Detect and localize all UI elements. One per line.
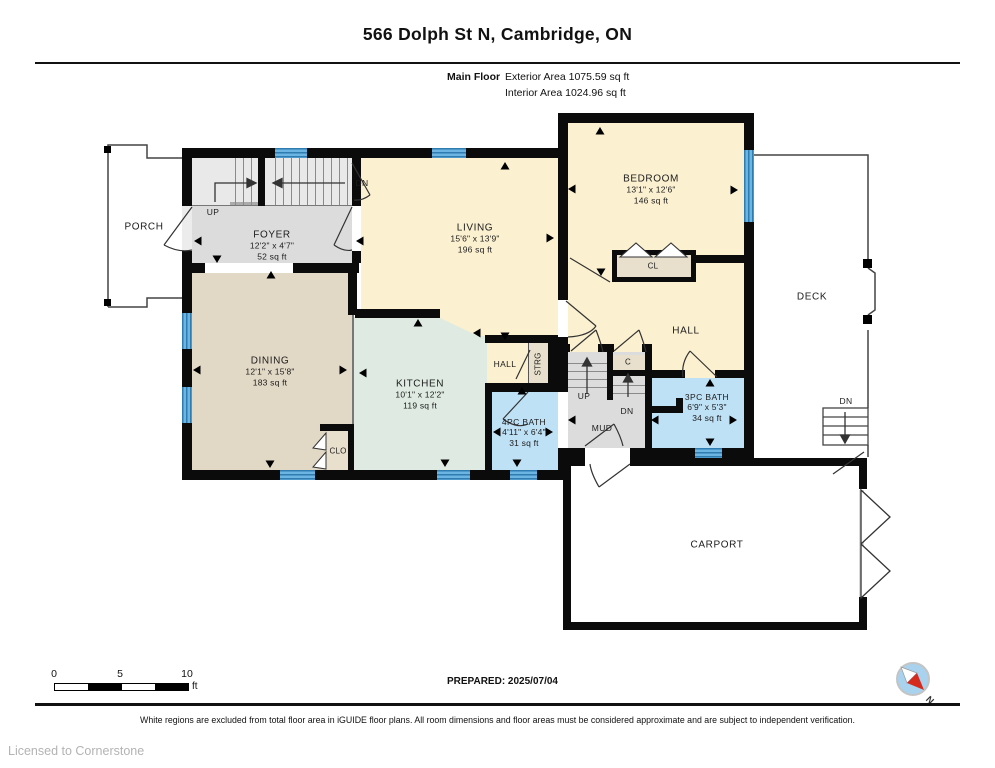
room-label-porch: PORCH [124, 222, 163, 233]
wall [607, 352, 613, 400]
center-dn-label: DN [620, 406, 633, 416]
dining-kitchen-divider [352, 315, 354, 425]
wall [192, 263, 205, 273]
room-label-bath3: 3PC BATH6'9" x 5'3"34 sq ft [685, 392, 729, 424]
window [437, 470, 470, 480]
room-label-deck: DECK [797, 292, 827, 303]
main-stairs-right-treads [268, 158, 352, 206]
up-stairs-treads [568, 356, 607, 392]
compass-icon: N [893, 659, 937, 703]
room-label-foyer: FOYER12'2" x 4'7"52 sq ft [250, 230, 294, 263]
deck-stairs [823, 408, 868, 445]
wall [258, 158, 265, 206]
wall [182, 251, 192, 480]
wall [630, 458, 867, 466]
room-label-bedroom: BEDROOM13'1" x 12'6"146 sq ft [623, 174, 679, 207]
room-label-dining: DINING12'1" x 15'8"183 sq ft [245, 356, 294, 389]
wall [630, 448, 754, 458]
wall [694, 255, 744, 263]
room-label-hall-small: HALL [494, 359, 517, 369]
room-label-bath4: 4PC BATH4'11" x 6'4"31 sq ft [502, 417, 546, 449]
scale-tick-5: 5 [117, 668, 123, 680]
carport-double-door [861, 490, 890, 598]
footer-divider [35, 703, 960, 706]
wall [645, 378, 652, 448]
wall [485, 392, 492, 470]
wall [676, 398, 683, 413]
center-up-label: UP [578, 391, 591, 401]
deck-post [863, 315, 872, 324]
wall [598, 344, 614, 352]
window [744, 150, 754, 222]
dn-stairs-treads [613, 378, 645, 400]
stairs-dn-label: DN [355, 178, 368, 188]
scale-bar: 0 5 10 ft [40, 668, 210, 698]
license-text: Licensed to Cornerstone [8, 744, 144, 758]
wall [182, 148, 565, 158]
disclaimer-text: White regions are excluded from total fl… [0, 715, 995, 725]
room-label-mud: MUD [592, 423, 613, 433]
deck-dn-label: DN [839, 396, 852, 406]
wall [645, 370, 685, 378]
scale-strip [54, 683, 189, 691]
room-label-hall-upper: HALL [672, 326, 699, 337]
deck-stairs-arrow [841, 412, 850, 443]
wall [352, 251, 361, 263]
wall [859, 458, 867, 489]
window [695, 448, 722, 458]
window [182, 313, 192, 349]
room-label-living: LIVING15'6" x 13'9"196 sq ft [450, 223, 499, 256]
porch-post [104, 146, 111, 153]
porch-door-threshold [182, 206, 192, 251]
wall [485, 383, 558, 392]
prepared-date: PREPARED: 2025/07/04 [385, 676, 620, 687]
wall [485, 335, 558, 343]
wall [348, 424, 354, 470]
window [432, 148, 466, 158]
window [182, 387, 192, 423]
stairs-up-label: UP [207, 207, 220, 217]
wall [563, 622, 867, 630]
wall [612, 277, 696, 282]
stairs-bottom-edge [192, 205, 352, 206]
scale-tick-10: 10 [181, 668, 193, 680]
floorplan: PORCH FOYER12'2" x 4'7"52 sq ft LIVING15… [0, 0, 995, 768]
window [510, 470, 537, 480]
closet-label-cl: CL [648, 262, 659, 271]
wall [558, 344, 570, 352]
wall [715, 370, 744, 378]
scale-tick-0: 0 [51, 668, 57, 680]
closet-label-c: C [625, 358, 631, 367]
wall [558, 158, 568, 300]
wall [613, 370, 645, 376]
wall [859, 597, 867, 630]
main-stairs-left-treads [228, 158, 258, 206]
wall [293, 263, 359, 273]
carport-door-strip [859, 490, 864, 598]
porch-post [104, 299, 111, 306]
wall [744, 222, 754, 458]
scale-unit: ft [192, 681, 198, 692]
wall [612, 250, 696, 255]
deck-post [863, 259, 872, 268]
room-label-kitchen: KITCHEN10'1" x 12'2"119 sq ft [395, 379, 444, 412]
closet-label-strg: STRG [534, 352, 543, 375]
wall [558, 113, 754, 123]
floorplan-page: 566 Dolph St N, Cambridge, ON Main Floor… [0, 0, 995, 768]
deck-outline [754, 155, 875, 457]
wall [355, 309, 440, 318]
window [280, 470, 315, 480]
closet-label-clo: CLO [329, 447, 346, 456]
room-label-carport: CARPORT [691, 540, 744, 551]
window [275, 148, 307, 158]
wall [744, 113, 754, 150]
wall [563, 458, 571, 630]
door-carport [590, 464, 630, 487]
